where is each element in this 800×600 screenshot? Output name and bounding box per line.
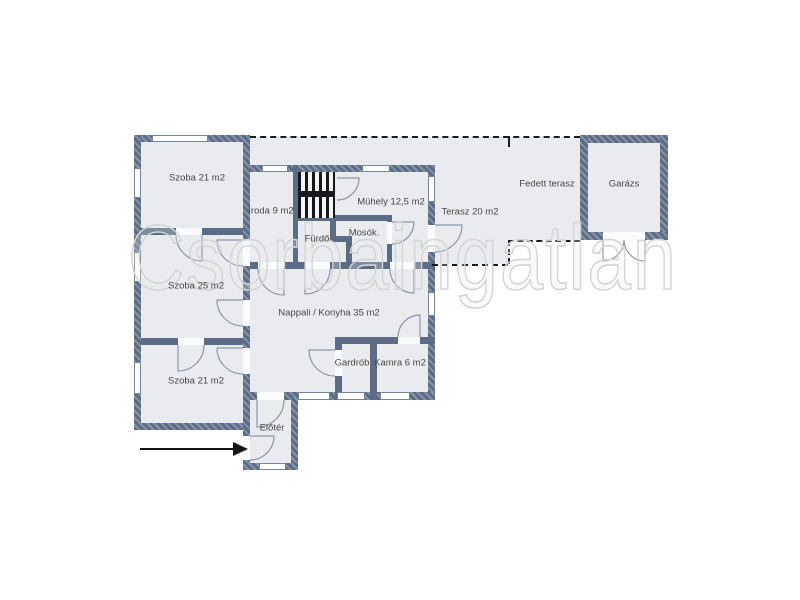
door-arc [176,235,202,261]
room-label-garazs: Garázs [609,179,640,190]
garage-door-arc-right [624,240,645,261]
door-arc [392,222,414,244]
door-arcs-overlay [0,0,800,600]
room-label-terasz: Terasz 20 m2 [441,207,498,218]
door-arc [390,269,414,293]
room-label-kamra: Kamra 6 m2 [374,358,426,369]
door-arc [178,345,204,371]
door-arc [217,240,243,266]
entry-arrow [140,442,248,456]
garage-door-arc-left [603,240,624,261]
room-label-nappali: Nappali / Konyha 35 m2 [278,308,379,319]
room-label-szoba21-bottom: Szoba 21 m2 [168,376,224,387]
room-label-muhely: Mühely 12,5 m2 [357,197,425,208]
room-label-eloter: Előtér [260,423,285,434]
room-label-fedett-terasz: Fedett terasz [519,179,574,190]
room-label-iroda: Iroda 9 m2 [248,206,293,217]
door-arc [435,225,462,252]
door-arc [337,178,359,200]
door-arc [217,300,243,326]
room-label-furdo: Fürdő [305,234,330,245]
door-arc [217,348,243,374]
door-arc [398,315,420,337]
door-arc [309,350,335,376]
door-arc [250,436,274,460]
room-label-szoba21-top: Szoba 21 m2 [169,173,225,184]
room-label-szoba25: Szoba 25 m2 [168,281,224,292]
door-arcs [176,178,645,460]
floor-plan: Szoba 21 m2 Iroda 9 m2 Mühely 12,5 m2 Te… [0,0,800,600]
door-arc [305,269,330,294]
room-label-gardrob: Gardrób [335,358,370,369]
room-label-mosok: Mosók. [349,228,380,239]
door-arc [258,269,284,295]
